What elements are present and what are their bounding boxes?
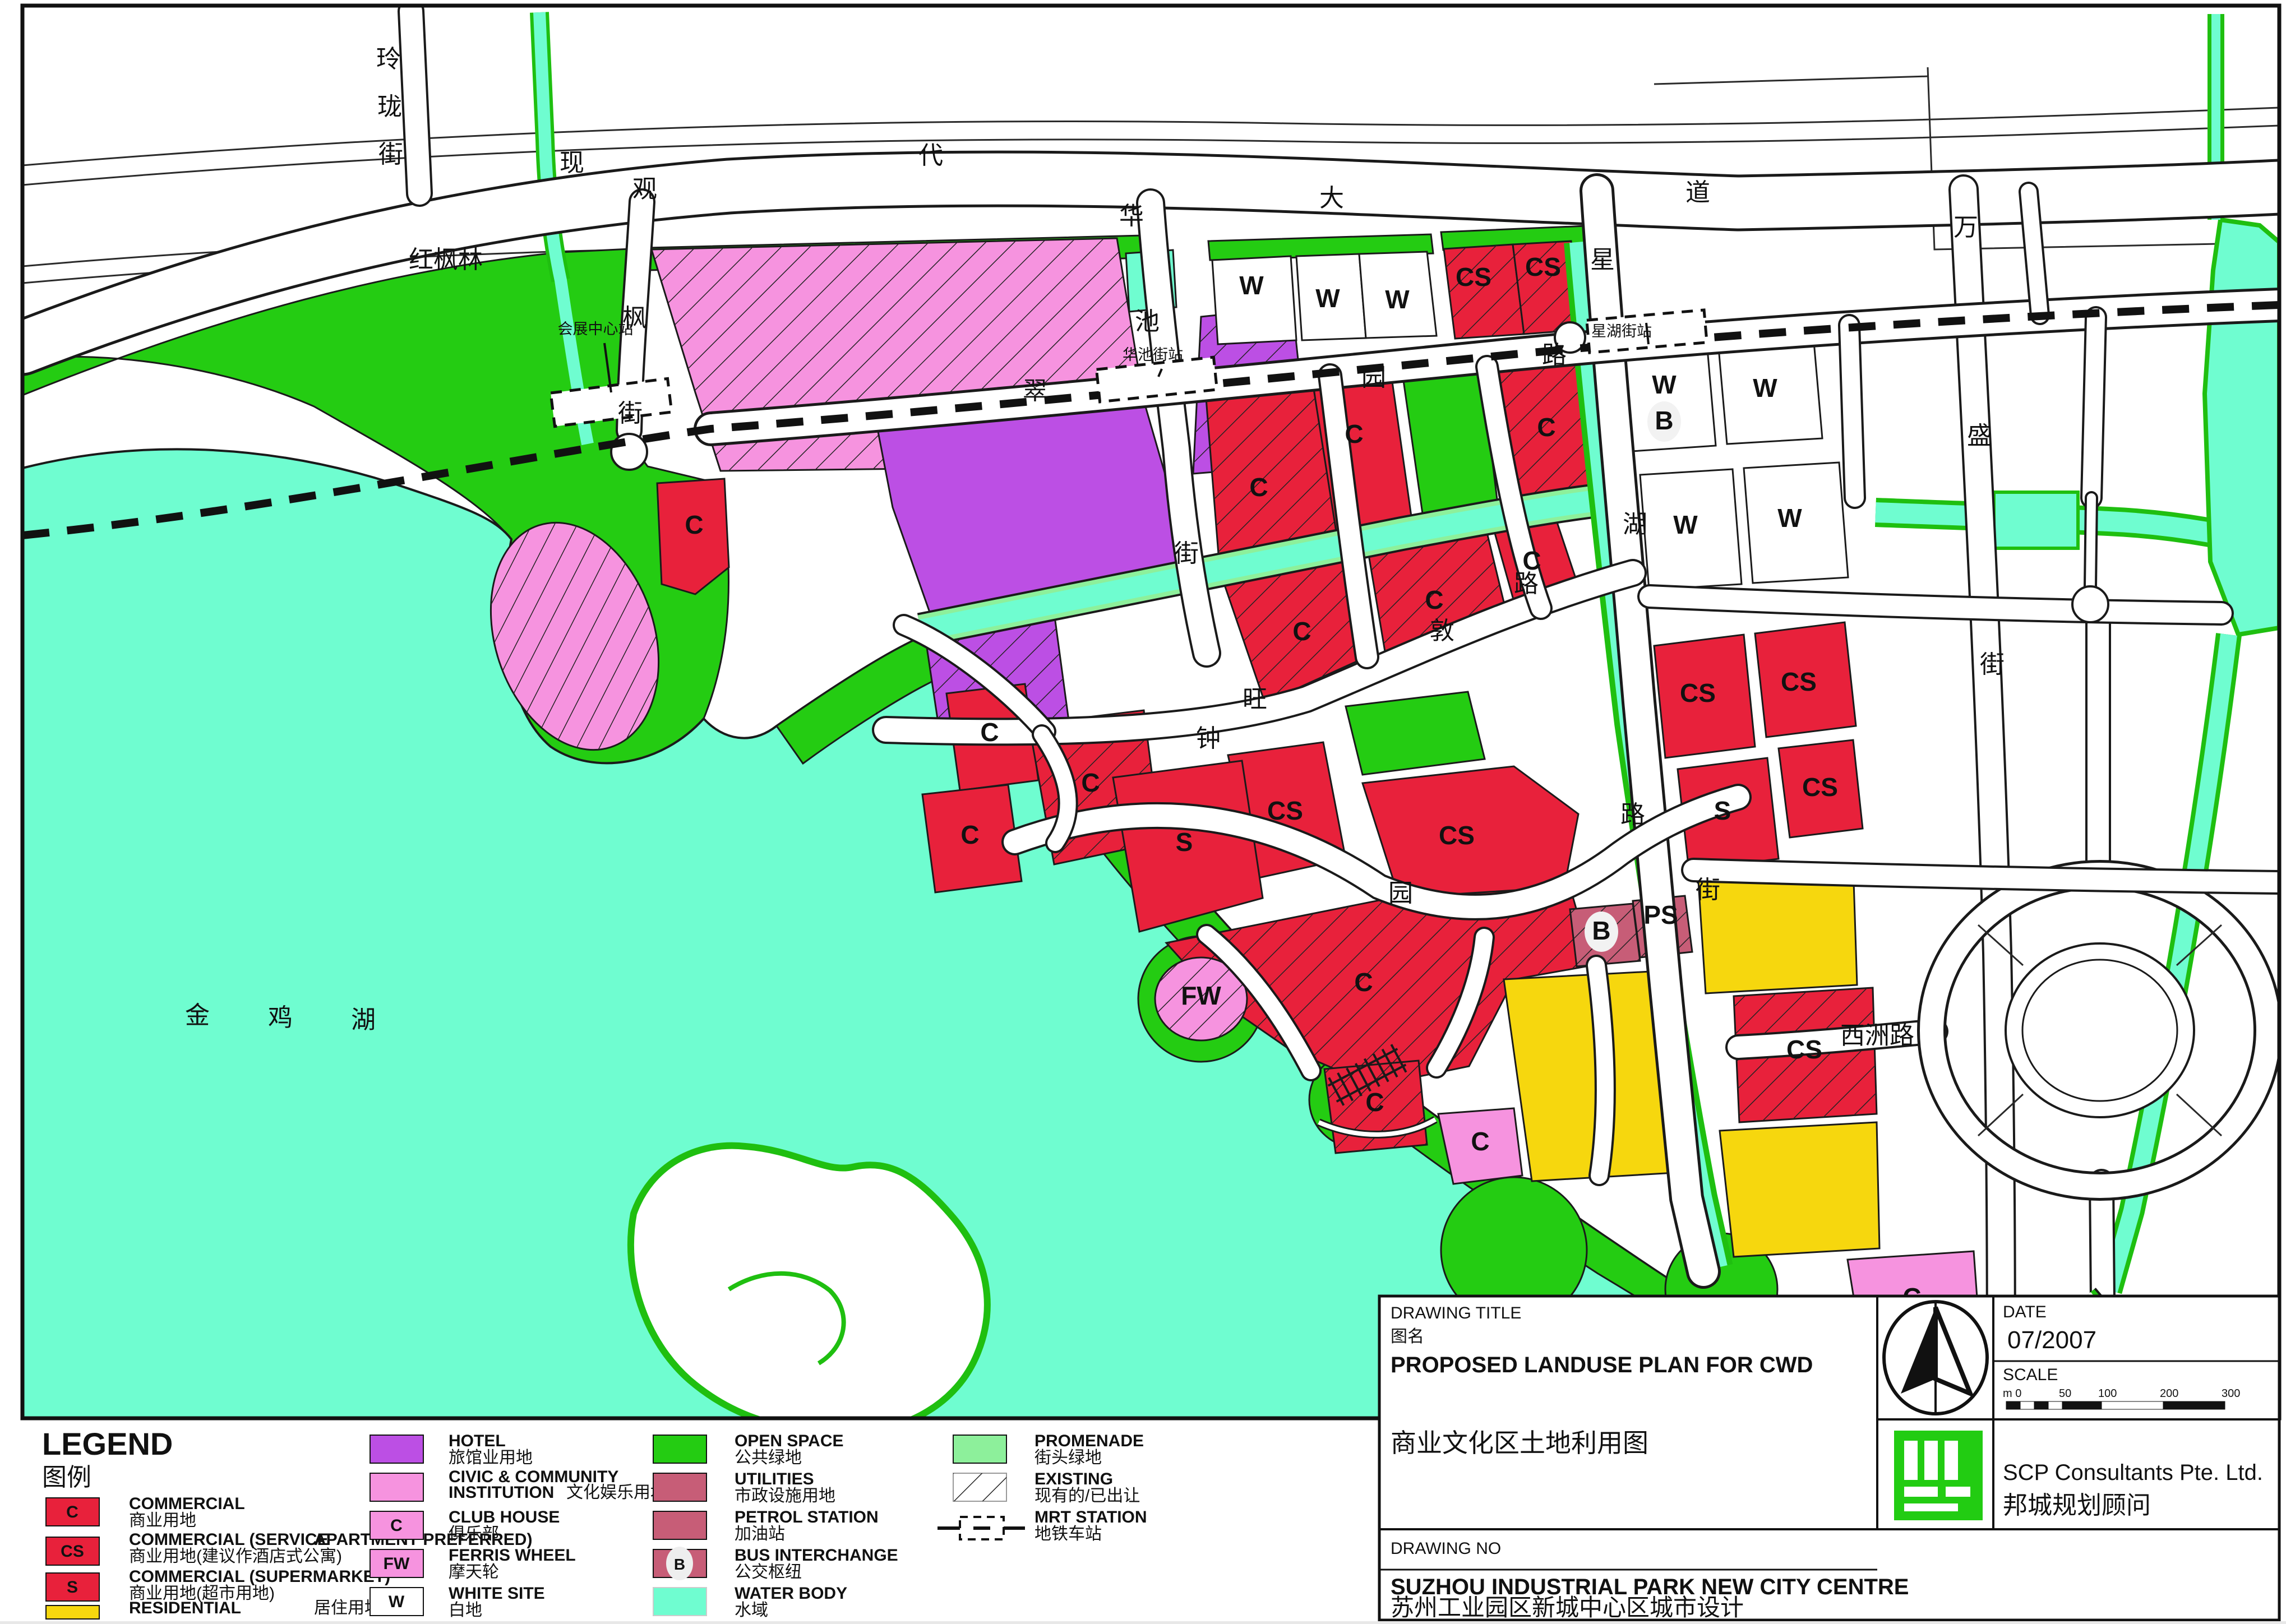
- parcel-code: CS: [1680, 678, 1716, 707]
- parcel-code: W: [1385, 285, 1410, 314]
- street-name-char: 园: [1388, 880, 1413, 907]
- scale-label: SCALE: [2003, 1366, 2058, 1384]
- parcel-code: C: [1425, 585, 1443, 614]
- scale-bar-segments: [2006, 1401, 2225, 1409]
- legend-label: MRT STATION: [1035, 1508, 1147, 1526]
- swatch-petrol: [653, 1511, 706, 1539]
- residential-parcel: [1720, 1122, 1879, 1257]
- legend-col3: OPEN SPACE 公共绿地 UTILITIES 市政设施用地 PETROL …: [653, 1432, 898, 1620]
- parcel-code: CS: [1439, 821, 1475, 850]
- legend-label-zh: 公共绿地: [735, 1449, 802, 1467]
- legend-label-zh: 文化娱乐用地: [566, 1483, 667, 1502]
- street-name-char: 大: [1319, 184, 1344, 212]
- swatch-mrt-station: [938, 1517, 1025, 1539]
- parcel-code: C: [1249, 473, 1268, 502]
- linglong-street: [411, 11, 419, 193]
- swatch-hotel: [370, 1435, 423, 1463]
- scale-tick: m 0: [2003, 1387, 2021, 1400]
- swatch-promenade: [953, 1435, 1006, 1463]
- parcel-code: C: [1354, 968, 1373, 997]
- legend-title: LEGEND: [42, 1426, 173, 1461]
- mrt-station-name: 星湖街站: [1591, 323, 1652, 340]
- parcel-code: FW: [1181, 981, 1221, 1010]
- scale-tick: 50: [2059, 1387, 2071, 1400]
- legend-label-zh: 街头绿地: [1035, 1449, 1102, 1467]
- swatch-utilities: [653, 1473, 706, 1501]
- swatch-code: S: [67, 1578, 78, 1597]
- legend-label-zh: 旅馆业用地: [449, 1449, 533, 1467]
- drawing-title-label: DRAWING TITLE: [1391, 1304, 1521, 1322]
- parcel-code: CS: [1456, 262, 1491, 292]
- parcel-code: CS: [1802, 772, 1838, 802]
- parcel-code: S: [1176, 827, 1193, 857]
- legend-label-zh: 摩天轮: [449, 1563, 499, 1581]
- parcel-code: PS: [1643, 900, 1678, 929]
- legend-col4: PROMENADE 街头绿地 EXISTING 现有的/已出让 MRT STAT…: [938, 1432, 1147, 1543]
- legend-label: PETROL STATION: [735, 1508, 879, 1526]
- legend-label: COMMERCIAL (SERVICE: [129, 1530, 329, 1549]
- legend-label-zh: 水域: [735, 1601, 768, 1620]
- drawing-title-zh: 商业文化区土地利用图: [1391, 1428, 1648, 1458]
- swatch-code: C: [390, 1516, 403, 1535]
- street-name-char: 街: [618, 400, 643, 427]
- street-name-char: 路: [1620, 801, 1645, 829]
- street-name-char: 园: [1361, 364, 1386, 391]
- legend-label: UTILITIES: [735, 1470, 814, 1488]
- street-name-char: 代: [918, 142, 943, 169]
- street-name-char: 星: [1590, 246, 1615, 274]
- legend-label: COMMERCIAL (SUPERMARKET): [129, 1567, 390, 1586]
- cul-de-sac-stem: [2090, 498, 2091, 586]
- legend-label-zh: 公交枢纽: [735, 1563, 802, 1581]
- map-canvas: 玲珑街现代大道观枫街华池街翠园路星湖街万盛街旺敦路钟园路 西洲路 金鸡湖红枫林 …: [22, 6, 2279, 1433]
- legend-label-zh: 俱乐部: [449, 1525, 499, 1543]
- cul-de-sac: [611, 434, 647, 470]
- swatch-code: FW: [384, 1554, 410, 1573]
- parcel-code: CS: [1525, 252, 1561, 281]
- parcel-code: W: [1652, 370, 1677, 399]
- parcel-code: C: [685, 510, 703, 539]
- legend-label-zh: 市政设施用地: [735, 1487, 835, 1505]
- swatch-water: [653, 1588, 706, 1616]
- street-name-char: 敦: [1430, 617, 1454, 645]
- parcel-code: B: [1592, 916, 1610, 945]
- east-road: [1849, 325, 1855, 498]
- parcel-code: C: [960, 820, 979, 849]
- title-block: DRAWING TITLE 图名 PROPOSED LANDUSE PLAN F…: [1379, 1296, 2279, 1621]
- project-name-zh: 苏州工业园区新城中心区城市设计: [1391, 1594, 1744, 1621]
- legend-col2: HOTEL 旅馆业用地 CIVIC & COMMUNITY INSTITUTIO…: [370, 1432, 667, 1620]
- street-name-char: 钟: [1196, 725, 1221, 752]
- swatch-code: B: [674, 1556, 685, 1573]
- parcel-code: W: [1673, 510, 1698, 539]
- street-name-char: 华: [1119, 202, 1144, 230]
- open-space-parcel: [1346, 692, 1485, 775]
- legend-label: INSTITUTION: [449, 1483, 554, 1502]
- firm-name-en: SCP Consultants Pte. Ltd.: [2003, 1460, 2263, 1485]
- scale-tick: 300: [2222, 1387, 2240, 1400]
- firm-name-zh: 邦城规划顾问: [2003, 1492, 2151, 1519]
- scale-tick: 200: [2160, 1387, 2178, 1400]
- place-name-label: 红枫林: [409, 246, 483, 274]
- street-name-char: 池: [1135, 308, 1160, 335]
- parcel-code: C: [980, 718, 999, 747]
- east-road: [2029, 192, 2040, 315]
- landuse-map: 玲珑街现代大道观枫街华池街翠园路星湖街万盛街旺敦路钟园路 西洲路 金鸡湖红枫林 …: [0, 0, 2286, 1621]
- legend-label: WATER BODY: [735, 1584, 847, 1603]
- legend-subtitle: 图例: [42, 1464, 91, 1491]
- parcel-code: S: [1714, 796, 1731, 825]
- street-name-char: 现: [560, 149, 584, 177]
- parcel-code: W: [1239, 271, 1264, 300]
- roundabout-island: [2006, 943, 2194, 1117]
- street-name-char: 观: [632, 175, 657, 203]
- white-site-parcel: [1212, 256, 1296, 344]
- swatch-existing: [953, 1473, 1006, 1501]
- parcel-code: CS: [1786, 1035, 1822, 1064]
- street-name-char: 街: [1980, 651, 2005, 678]
- mrt-station-name: 华池街站: [1123, 346, 1183, 363]
- street-name-char: 湖: [1623, 511, 1647, 538]
- legend-label: COMMERCIAL: [129, 1495, 245, 1513]
- legend-label: WHITE SITE: [449, 1584, 545, 1603]
- drawing-title: PROPOSED LANDUSE PLAN FOR CWD: [1391, 1353, 1813, 1377]
- drawing-title-label-zh: 图名: [1391, 1327, 1424, 1346]
- street-name-char: 珑: [377, 93, 402, 121]
- legend-label: FERRIS WHEEL: [449, 1546, 576, 1565]
- parcel-code: B: [1655, 406, 1673, 435]
- place-name-label: 湖: [351, 1006, 376, 1034]
- street-name-char: 旺: [1243, 686, 1267, 713]
- east-road: [1693, 870, 2279, 882]
- hatch-overlay: [1444, 244, 1524, 339]
- parcel-code: C: [1471, 1127, 1489, 1156]
- parcel-code: CS: [1267, 796, 1303, 825]
- swatch-residential: [46, 1606, 99, 1619]
- legend-label-zh: 现有的/已出让: [1035, 1487, 1140, 1505]
- legend-panel: LEGEND 图例 C COMMERCIAL 商业用地 CS COMMERCIA…: [42, 1426, 1147, 1620]
- street-name-char: 街: [1696, 876, 1720, 904]
- swatch-bus-interchange: B: [653, 1547, 706, 1580]
- cul-de-sac: [2072, 586, 2108, 622]
- mrt-station-name: 会展中心站: [558, 321, 634, 337]
- place-name-label: 鸡: [268, 1004, 293, 1031]
- street-name-char: 玲: [376, 45, 401, 73]
- place-name-label: 金: [185, 1002, 210, 1029]
- legend-label-zh: 商业用地: [129, 1511, 196, 1530]
- legend-label: EXISTING: [1035, 1470, 1113, 1488]
- legend-label: RESIDENTIAL: [129, 1599, 241, 1617]
- swatch-code: CS: [61, 1542, 84, 1561]
- swatch-code: C: [66, 1503, 78, 1521]
- date-value: 07/2007: [2007, 1326, 2096, 1354]
- drawing-no-label: DRAWING NO: [1391, 1539, 1501, 1558]
- parcel-code: W: [1777, 503, 1802, 533]
- street-name-char: 街: [1174, 540, 1199, 567]
- legend-label-zh: 地铁车站: [1035, 1525, 1102, 1543]
- street-name-char: 盛: [1967, 422, 1992, 450]
- parcel-code: C: [1292, 617, 1311, 646]
- legend-label-zh: 商业用地(建议作酒店式公寓): [129, 1547, 342, 1566]
- title-block-frame: [1379, 1296, 2279, 1620]
- street-name-char: 街: [378, 141, 403, 168]
- parcel-code: W: [1753, 373, 1777, 402]
- legend-label: CLUB HOUSE: [449, 1508, 560, 1526]
- swatch-civic: [370, 1473, 423, 1501]
- legend-label-zh: 白地: [449, 1601, 482, 1620]
- east-road: [2091, 317, 2096, 498]
- parcel-code: C: [1365, 1088, 1384, 1117]
- plan-sheet: 玲珑街现代大道观枫街华池街翠园路星湖街万盛街旺敦路钟园路 西洲路 金鸡湖红枫林 …: [0, 0, 2286, 1621]
- street-name-char: 翠: [1023, 377, 1047, 405]
- street-name-char: 道: [1685, 179, 1710, 206]
- date-label: DATE: [2003, 1303, 2047, 1321]
- street-name-char: 万: [1954, 214, 1978, 241]
- swatch-code: W: [389, 1593, 405, 1611]
- swatch-open-space: [653, 1435, 706, 1463]
- parcel-code: C: [1537, 413, 1555, 442]
- legend-label-zh: 加油站: [735, 1525, 785, 1543]
- road-name-label: 西洲路: [1840, 1022, 1914, 1049]
- parcel-code: CS: [1781, 667, 1817, 696]
- scale-tick: 100: [2098, 1387, 2117, 1400]
- road-name-labels: 西洲路: [1840, 1022, 1914, 1049]
- parcel-code: C: [1522, 546, 1541, 575]
- parcel-code: C: [1081, 768, 1100, 797]
- legend-label: HOTEL: [449, 1432, 506, 1450]
- legend-label: BUS INTERCHANGE: [735, 1546, 898, 1565]
- parcel-code: W: [1315, 284, 1340, 313]
- legend-label: OPEN SPACE: [735, 1432, 844, 1450]
- connector-road: [1596, 965, 1605, 1176]
- scp-logo: [1894, 1431, 1983, 1520]
- parcel-code: C: [1345, 419, 1363, 448]
- street-name-char: 路: [1542, 341, 1567, 369]
- residential-parcel: [1504, 971, 1675, 1181]
- legend-label: PROMENADE: [1035, 1432, 1144, 1450]
